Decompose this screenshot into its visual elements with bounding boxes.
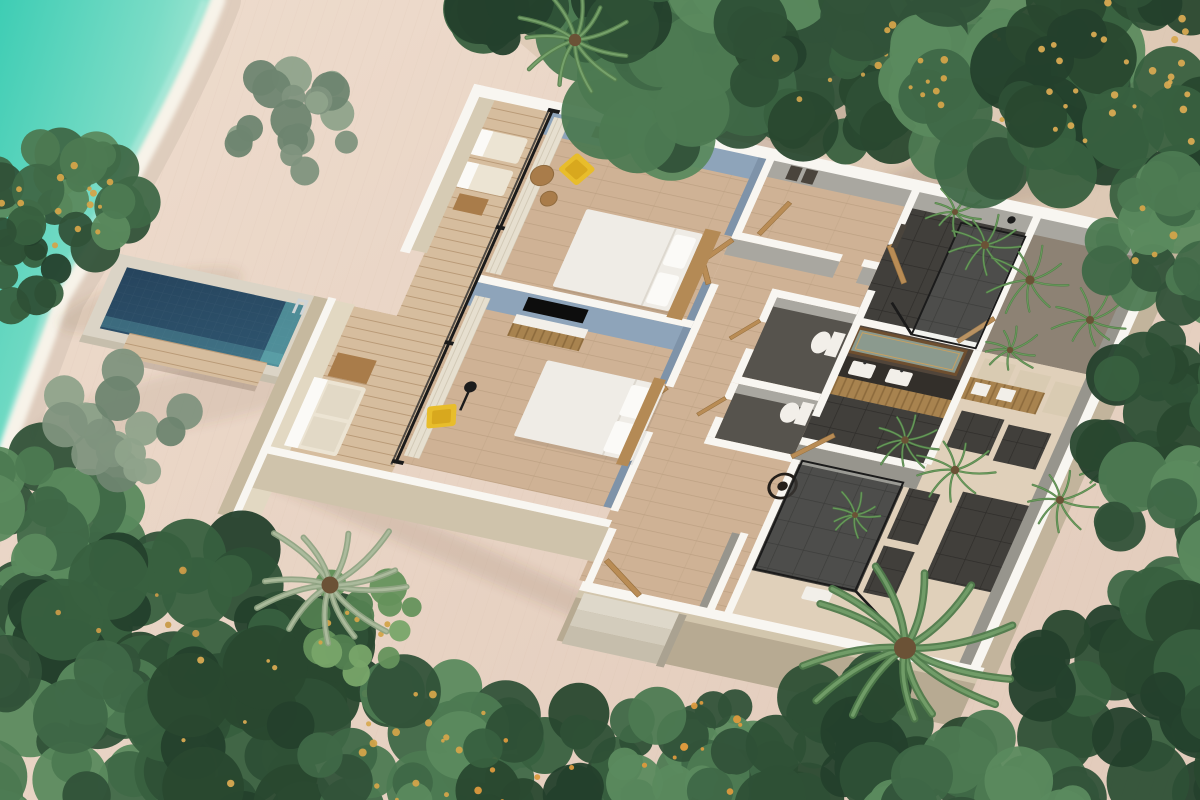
foliage-blob [335, 131, 358, 154]
flower-dot [701, 747, 705, 751]
palm-crown [322, 577, 339, 594]
foliage-blob [1009, 655, 1076, 722]
scene [0, 0, 1200, 800]
flower-dot [680, 743, 687, 750]
flower-dot [1171, 36, 1178, 43]
foliage-blob [17, 275, 57, 315]
flower-dot [941, 56, 949, 64]
flower-dot [797, 96, 803, 102]
foliage-blob [162, 557, 233, 628]
foliage-blob [1140, 672, 1185, 717]
flower-dot [425, 719, 432, 726]
flower-dot [90, 190, 97, 197]
flower-dot [243, 720, 247, 724]
villa-render [0, 0, 1200, 800]
foliage-blob [60, 137, 108, 185]
flower-dot [444, 792, 449, 797]
foliage-blob [68, 539, 149, 620]
flower-dot [738, 723, 742, 727]
flower-dot [1168, 74, 1175, 81]
foliage-blob [1026, 137, 1097, 208]
flower-dot [52, 242, 58, 248]
flower-dot [733, 715, 741, 723]
flower-dot [272, 665, 277, 670]
foliage-blob [1082, 246, 1132, 296]
flower-dot [227, 780, 234, 787]
flower-dot [1083, 138, 1088, 143]
foliage-blob [223, 625, 308, 710]
foliage-blob [15, 446, 54, 485]
foliage-blob [367, 654, 441, 728]
flower-dot [1109, 109, 1116, 116]
foliage-blob [74, 640, 133, 699]
flower-dot [1051, 42, 1057, 48]
flower-dot [1182, 28, 1189, 35]
foliage-blob [1094, 502, 1134, 542]
palm-crown [894, 637, 916, 659]
flower-dot [75, 226, 81, 232]
foliage-blob [236, 115, 263, 142]
flower-dot [155, 593, 159, 597]
palm-crown [1086, 316, 1094, 324]
foliage-blob [115, 438, 146, 469]
flower-dot [918, 58, 924, 64]
flower-dot [165, 622, 171, 628]
foliage-blob [84, 419, 116, 451]
flower-dot [1124, 59, 1129, 64]
foliage-blob [156, 417, 185, 446]
flower-dot [98, 205, 102, 209]
foliage-blob [297, 732, 342, 777]
flower-dot [481, 711, 485, 715]
flower-dot [1178, 15, 1186, 23]
flower-dot [642, 763, 647, 768]
flower-dot [374, 783, 379, 788]
flower-dot [71, 162, 78, 169]
flower-dot [884, 27, 890, 33]
foliage-blob [402, 597, 422, 617]
flower-dot [366, 721, 371, 726]
foliage-blob [730, 59, 779, 108]
flower-dot [87, 187, 91, 191]
flower-dot [861, 73, 865, 77]
flower-dot [938, 102, 945, 109]
foliage-blob [14, 534, 57, 577]
palm-crown [981, 241, 989, 249]
flower-dot [456, 747, 463, 754]
flower-dot [107, 179, 114, 186]
foliage-blob [280, 144, 302, 166]
palm-crown [1007, 347, 1013, 353]
flower-dot [1091, 32, 1097, 38]
flower-dot [1170, 231, 1178, 239]
palm-crown [852, 512, 858, 518]
flower-dot [889, 21, 897, 29]
foliage-blob [1092, 707, 1152, 767]
flower-dot [1149, 67, 1157, 75]
flower-dot [490, 767, 495, 772]
foliage-blob [100, 183, 136, 219]
flower-dot [828, 78, 832, 82]
foliage-blob [572, 720, 616, 764]
flower-dot [266, 659, 270, 663]
flower-dot [1188, 138, 1195, 145]
flower-dot [1132, 257, 1139, 264]
foliage-blob [42, 402, 87, 447]
foliage-blob [349, 644, 372, 667]
flower-dot [926, 80, 930, 84]
flower-dot [359, 749, 367, 757]
foliage-blob [270, 99, 311, 140]
flower-dot [920, 92, 925, 97]
flower-dot [181, 738, 185, 742]
flower-dot [413, 692, 418, 697]
flower-dot [1152, 252, 1158, 258]
flower-dot [569, 765, 574, 770]
flower-dot [412, 780, 419, 787]
flower-dot [474, 787, 482, 795]
flower-dot [345, 611, 349, 615]
flower-dot [700, 701, 704, 705]
flower-dot [87, 201, 94, 208]
palm-crown [952, 209, 958, 215]
flower-dot [504, 738, 509, 743]
flower-dot [429, 691, 437, 699]
flower-dot [96, 628, 101, 633]
flower-dot [933, 88, 940, 95]
palm-crown [1025, 275, 1034, 284]
foliage-blob [1094, 356, 1139, 401]
flower-dot [1140, 205, 1146, 211]
flower-dot [941, 75, 947, 81]
flower-dot [192, 630, 199, 637]
flower-dot [55, 610, 61, 616]
foliage-blob [1147, 478, 1197, 528]
flower-dot [370, 740, 378, 748]
foliage-blob [21, 129, 60, 168]
flower-dot [1038, 46, 1045, 53]
foliage-blob [463, 728, 503, 768]
foliage-blob [768, 91, 839, 162]
flower-dot [384, 621, 390, 627]
flower-dot [673, 756, 677, 760]
flower-dot [1184, 91, 1190, 97]
foliage-blob [243, 60, 279, 96]
flower-dot [1073, 88, 1078, 93]
flower-dot [180, 568, 185, 573]
yellow-armchair [426, 404, 456, 429]
flower-dot [318, 640, 322, 644]
flower-dot [95, 229, 100, 234]
flower-dot [1063, 104, 1068, 109]
flower-dot [1111, 91, 1118, 98]
flower-dot [1168, 80, 1173, 85]
foliage-blob [389, 620, 410, 641]
foliage-blob [1004, 85, 1067, 148]
flower-dot [57, 174, 64, 181]
flower-dot [1180, 106, 1188, 114]
flower-dot [55, 208, 62, 215]
foliage-blob [147, 653, 231, 737]
foliage-blob [1047, 15, 1089, 57]
foliage-blob [378, 647, 400, 669]
flower-dot [1101, 36, 1107, 42]
flower-dot [727, 788, 734, 795]
foliage-blob [378, 593, 402, 617]
foliage-blob [306, 91, 328, 113]
flower-dot [16, 186, 22, 192]
foliage-blob [95, 376, 140, 421]
flower-dot [1056, 58, 1063, 65]
flower-dot [441, 739, 445, 743]
palm-crown [1056, 496, 1064, 504]
palm-crown [569, 34, 581, 46]
flower-dot [772, 54, 780, 62]
flower-dot [875, 62, 882, 69]
flower-dot [534, 774, 540, 780]
foliage-blob [628, 687, 686, 745]
palm-crown [951, 466, 959, 474]
flower-dot [1053, 127, 1058, 132]
flower-dot [1132, 104, 1136, 108]
flower-dot [691, 703, 698, 710]
flower-dot [1046, 88, 1053, 95]
flower-dot [909, 85, 913, 89]
flower-dot [1178, 60, 1185, 67]
flower-dot [17, 200, 24, 207]
palm-crown [901, 436, 909, 444]
flower-dot [1068, 122, 1075, 129]
foliage-blob [1117, 178, 1151, 212]
flower-dot [392, 728, 400, 736]
flower-dot [197, 657, 204, 664]
